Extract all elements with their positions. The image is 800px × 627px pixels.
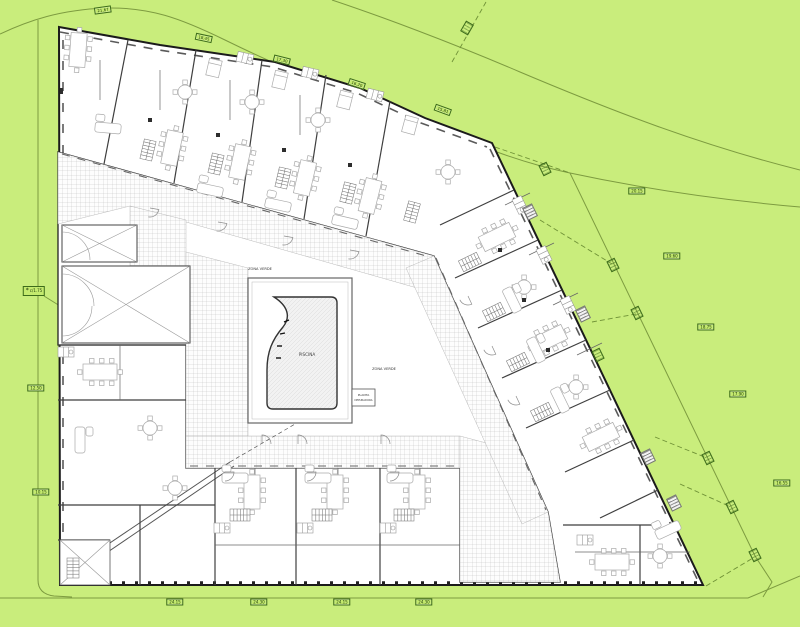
- svg-text:DEPURADORA: DEPURADORA: [354, 398, 372, 402]
- lawn-label-top: ZONA VERDE: [248, 267, 273, 271]
- road-continuation: [570, 173, 800, 207]
- pool-area: PISCINA: [248, 278, 352, 423]
- site-plan-drawing: PISCINA ZONA VERDE ZONA VERDE PLANTA DEP…: [0, 0, 800, 627]
- lawn-label-right: ZONA VERDE: [372, 367, 397, 371]
- site-plan-canvas: PISCINA ZONA VERDE ZONA VERDE PLANTA DEP…: [0, 0, 800, 627]
- access-marker: *c/1.75: [23, 286, 45, 296]
- planta-depuradora-box: PLANTA DEPURADORA: [352, 389, 375, 406]
- access-marker-text: c/1.75: [30, 288, 42, 293]
- pool-label: PISCINA: [299, 352, 316, 357]
- svg-text:PLANTA: PLANTA: [358, 393, 370, 397]
- access-marker-icon: *: [26, 287, 29, 294]
